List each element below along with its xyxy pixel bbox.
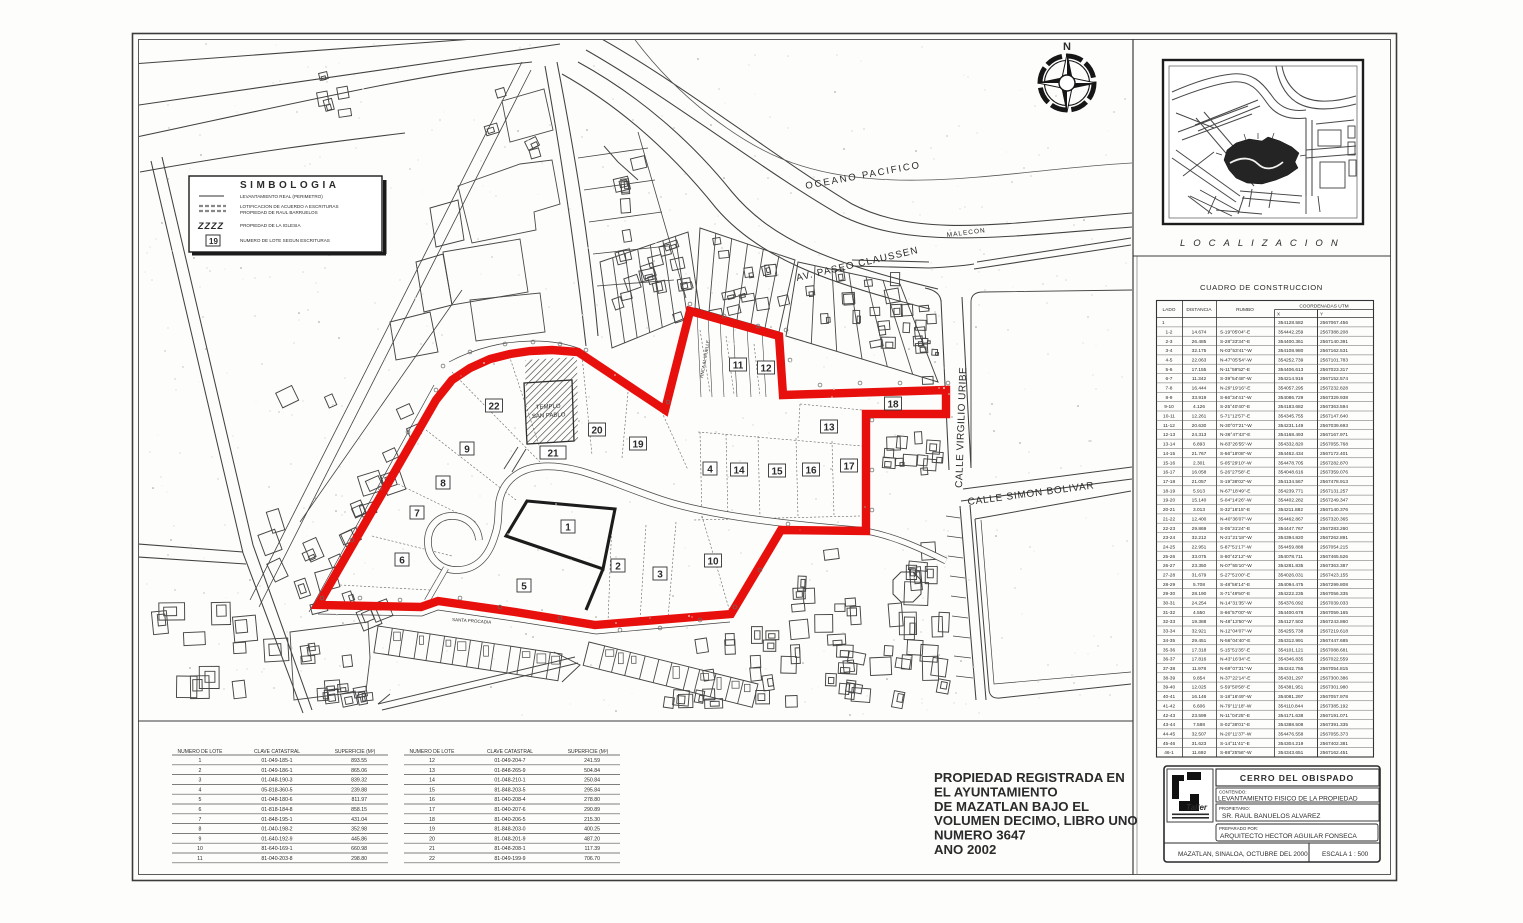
svg-text:354183.682: 354183.682 <box>1278 404 1304 410</box>
svg-text:16.058: 16.058 <box>1192 470 1207 476</box>
svg-text:27-28: 27-28 <box>1163 573 1176 579</box>
svg-text:38-39: 38-39 <box>1163 675 1176 681</box>
svg-text:839.32: 839.32 <box>351 778 367 784</box>
svg-text:11: 11 <box>197 856 202 862</box>
svg-text:2567055.373: 2567055.373 <box>1320 732 1348 738</box>
svg-text:29-30: 29-30 <box>1163 591 1176 597</box>
svg-text:23-24: 23-24 <box>1163 535 1176 541</box>
svg-text:01-640-192-9: 01-640-192-9 <box>261 836 292 842</box>
svg-text:15.140: 15.140 <box>1192 498 1207 504</box>
svg-text:811.97: 811.97 <box>352 797 368 803</box>
svg-text:13: 13 <box>429 768 435 774</box>
svg-text:PROPIEDAD REGISTRADA EN: PROPIEDAD REGISTRADA EN <box>934 770 1125 785</box>
svg-text:445.86: 445.86 <box>351 836 367 842</box>
svg-text:2567283.260: 2567283.260 <box>1320 526 1348 532</box>
svg-text:3-4: 3-4 <box>1166 348 1173 354</box>
svg-text:S-25°40'40"-E: S-25°40'40"-E <box>1220 404 1250 410</box>
svg-text:2567055.768: 2567055.768 <box>1320 442 1348 448</box>
svg-text:2567088.681: 2567088.681 <box>1320 647 1348 653</box>
svg-text:CUADRO DE CONSTRUCCION: CUADRO DE CONSTRUCCION <box>1200 283 1323 292</box>
svg-text:10: 10 <box>197 846 203 852</box>
svg-text:354476.558: 354476.558 <box>1278 732 1304 738</box>
svg-text:2567363.387: 2567363.387 <box>1320 563 1348 569</box>
svg-text:354168.493: 354168.493 <box>1278 432 1304 438</box>
svg-text:354171.638: 354171.638 <box>1278 713 1304 719</box>
svg-text:S-66°34'41"-W: S-66°34'41"-W <box>1220 395 1252 401</box>
svg-text:2567243.860: 2567243.860 <box>1320 619 1348 625</box>
svg-text:2567101.783: 2567101.783 <box>1320 357 1348 363</box>
svg-text:5.708: 5.708 <box>1193 582 1205 588</box>
svg-text:11-12: 11-12 <box>1163 423 1175 429</box>
svg-text:01-049-204-7: 01-049-204-7 <box>494 758 525 764</box>
svg-text:2567172.401: 2567172.401 <box>1320 451 1348 457</box>
svg-text:2567329.938: 2567329.938 <box>1320 395 1348 401</box>
svg-text:CLAVE CATASTRAL: CLAVE CATASTRAL <box>487 749 533 755</box>
svg-text:24.313: 24.313 <box>1192 432 1207 438</box>
svg-text:2567423.155: 2567423.155 <box>1320 573 1348 579</box>
svg-text:PROPIEDAD DE RAUL BARRUELOS: PROPIEDAD DE RAUL BARRUELOS <box>240 210 318 215</box>
svg-text:81-848-203-0: 81-848-203-0 <box>494 827 525 833</box>
svg-text:13-14: 13-14 <box>1163 442 1176 448</box>
svg-text:2567191.071: 2567191.071 <box>1320 713 1348 719</box>
svg-text:16.444: 16.444 <box>1192 386 1207 392</box>
svg-text:EL AYUNTAMIENTO: EL AYUNTAMIENTO <box>934 784 1058 799</box>
svg-text:354462.434: 354462.434 <box>1278 451 1304 457</box>
svg-text:S-71°12'57"-E: S-71°12'57"-E <box>1220 414 1250 420</box>
svg-text:14.674: 14.674 <box>1192 329 1207 335</box>
svg-text:24.254: 24.254 <box>1192 601 1207 607</box>
svg-text:46-1: 46-1 <box>1164 750 1174 756</box>
svg-text:21: 21 <box>429 846 435 852</box>
svg-text:2567059.165: 2567059.165 <box>1320 610 1348 616</box>
svg-text:01-049-186-1: 01-049-186-1 <box>261 768 292 774</box>
svg-text:354459.888: 354459.888 <box>1278 545 1304 551</box>
svg-text:354211.882: 354211.882 <box>1278 507 1303 513</box>
svg-text:S-39°54'48"-W: S-39°54'48"-W <box>1220 376 1252 382</box>
svg-text:354462.867: 354462.867 <box>1278 516 1304 522</box>
svg-text:19.388: 19.388 <box>1192 619 1207 625</box>
svg-text:CONTENIDO:: CONTENIDO: <box>1219 790 1247 795</box>
svg-text:4: 4 <box>199 787 202 793</box>
svg-text:354381.951: 354381.951 <box>1278 685 1304 691</box>
svg-text:N-07°55'10"-W: N-07°55'10"-W <box>1220 563 1252 569</box>
svg-text:N-12°04'07"-W: N-12°04'07"-W <box>1220 629 1252 635</box>
svg-text:14-15: 14-15 <box>1163 451 1176 457</box>
svg-text:05-818-360-5: 05-818-360-5 <box>261 787 292 793</box>
svg-text:COORDENADAS UTM: COORDENADAS UTM <box>1299 304 1348 310</box>
svg-text:354128.582: 354128.582 <box>1278 320 1304 326</box>
svg-text:17.155: 17.155 <box>1192 367 1207 373</box>
svg-text:10: 10 <box>707 557 719 568</box>
svg-text:31.623: 31.623 <box>1192 741 1207 747</box>
svg-text:S-48°56'14"-E: S-48°56'14"-E <box>1220 582 1250 588</box>
svg-text:354255.738: 354255.738 <box>1278 629 1304 635</box>
svg-text:431.04: 431.04 <box>351 817 367 823</box>
svg-text:PREPARADO POR:: PREPARADO POR: <box>1219 826 1258 831</box>
svg-text:354331.297: 354331.297 <box>1278 675 1304 681</box>
svg-text:354376.092: 354376.092 <box>1278 601 1304 607</box>
svg-text:5: 5 <box>521 582 527 593</box>
svg-text:LOCALIZACION: LOCALIZACION <box>1180 238 1346 249</box>
svg-text:8: 8 <box>199 827 202 833</box>
svg-text:2567478.913: 2567478.913 <box>1320 479 1348 485</box>
svg-text:354078.711: 354078.711 <box>1278 554 1303 560</box>
svg-text:4: 4 <box>707 465 713 476</box>
svg-text:14: 14 <box>429 778 435 784</box>
svg-text:28-29: 28-29 <box>1163 582 1176 588</box>
svg-text:352.98: 352.98 <box>351 827 367 833</box>
svg-text:SUPERFICIE (M²): SUPERFICIE (M²) <box>335 749 376 755</box>
svg-text:20-21: 20-21 <box>1163 507 1176 513</box>
svg-text:17.816: 17.816 <box>1192 657 1207 663</box>
svg-text:487.20: 487.20 <box>584 836 600 842</box>
svg-text:1: 1 <box>199 758 202 764</box>
svg-text:N-30°07'21"-W: N-30°07'21"-W <box>1220 423 1252 429</box>
svg-text:N-21°21'18"-W: N-21°21'18"-W <box>1220 535 1252 541</box>
svg-text:2567054.815: 2567054.815 <box>1320 666 1348 672</box>
svg-text:504.84: 504.84 <box>584 768 600 774</box>
svg-text:N-14°31'35"-W: N-14°31'35"-W <box>1220 601 1252 607</box>
svg-text:N-47°05'54"-W: N-47°05'54"-W <box>1220 357 1252 363</box>
svg-text:354214.916: 354214.916 <box>1278 376 1304 382</box>
svg-text:32.921: 32.921 <box>1192 629 1207 635</box>
svg-text:400.25: 400.25 <box>584 827 600 833</box>
svg-text:81-048-208-1: 81-048-208-1 <box>494 846 525 852</box>
svg-text:354332.820: 354332.820 <box>1278 442 1304 448</box>
svg-text:19: 19 <box>632 440 644 451</box>
svg-text:354110.844: 354110.844 <box>1278 703 1303 709</box>
svg-text:33.075: 33.075 <box>1192 554 1207 560</box>
svg-text:278.80: 278.80 <box>584 797 600 803</box>
svg-text:40-41: 40-41 <box>1163 694 1176 700</box>
svg-text:01-048-180-6: 01-048-180-6 <box>261 797 292 803</box>
svg-text:2567262.891: 2567262.891 <box>1320 535 1348 541</box>
svg-text:9-10: 9-10 <box>1164 404 1174 410</box>
svg-text:22.951: 22.951 <box>1192 545 1207 551</box>
svg-text:4.550: 4.550 <box>1193 610 1205 616</box>
svg-text:2567465.526: 2567465.526 <box>1320 554 1348 560</box>
svg-text:SUPERFICIE (M²): SUPERFICIE (M²) <box>568 749 609 755</box>
svg-text:16.146: 16.146 <box>1192 694 1207 700</box>
svg-text:354406.613: 354406.613 <box>1278 367 1304 373</box>
svg-text:S-56°18'08"-W: S-56°18'08"-W <box>1220 451 1252 457</box>
svg-text:16: 16 <box>429 797 435 803</box>
svg-text:2-3: 2-3 <box>1166 339 1173 345</box>
svg-text:1: 1 <box>1162 320 1165 325</box>
svg-text:6-7: 6-7 <box>1166 376 1173 382</box>
svg-text:17: 17 <box>843 462 855 473</box>
svg-text:12: 12 <box>429 758 435 764</box>
svg-text:S-80°42'12"-W: S-80°42'12"-W <box>1220 554 1252 560</box>
svg-text:2567039.033: 2567039.033 <box>1320 601 1348 607</box>
svg-text:2567039.693: 2567039.693 <box>1320 423 1348 429</box>
svg-text:NUMERO 3647: NUMERO 3647 <box>934 828 1026 843</box>
svg-text:354402.282: 354402.282 <box>1278 498 1304 504</box>
svg-text:4-5: 4-5 <box>1166 357 1173 363</box>
svg-text:28.190: 28.190 <box>1192 591 1207 597</box>
svg-text:N-56°04'40"-E: N-56°04'40"-E <box>1220 638 1250 644</box>
svg-text:32.175: 32.175 <box>1192 348 1207 354</box>
svg-text:117.39: 117.39 <box>585 846 601 852</box>
svg-text:12.261: 12.261 <box>1192 414 1207 420</box>
svg-text:DE MAZATLAN BAJO EL: DE MAZATLAN BAJO EL <box>934 799 1089 814</box>
svg-text:SR. RAUL BANUELOS ALVAREZ: SR. RAUL BANUELOS ALVAREZ <box>1222 813 1320 820</box>
svg-text:N-43°16'34"-E: N-43°16'34"-E <box>1220 657 1250 663</box>
svg-text:16: 16 <box>805 466 817 477</box>
svg-text:20.630: 20.630 <box>1192 423 1207 429</box>
svg-text:19: 19 <box>209 237 218 246</box>
svg-text:S-18°16'49"-W: S-18°16'49"-W <box>1220 694 1252 700</box>
svg-text:ZZZZ: ZZZZ <box>197 221 224 231</box>
svg-text:36-37: 36-37 <box>1163 657 1176 663</box>
svg-text:24-25: 24-25 <box>1163 545 1176 551</box>
svg-text:N-79°11'18"-W: N-79°11'18"-W <box>1220 703 1252 709</box>
svg-text:S-66°57'00"-W: S-66°57'00"-W <box>1220 610 1252 616</box>
svg-text:VOLUMEN DECIMO, LIBRO UNO: VOLUMEN DECIMO, LIBRO UNO <box>934 813 1138 828</box>
svg-text:1-2: 1-2 <box>1166 329 1173 335</box>
svg-text:S-19°05'04"-E: S-19°05'04"-E <box>1220 329 1250 335</box>
svg-text:706.70: 706.70 <box>584 856 600 862</box>
svg-text:PROPIEDAD DE LA IGLESIA: PROPIEDAD DE LA IGLESIA <box>240 223 301 228</box>
svg-text:33.919: 33.919 <box>1192 395 1207 401</box>
svg-text:33-34: 33-34 <box>1163 629 1176 635</box>
svg-text:2567140.391: 2567140.391 <box>1320 339 1348 345</box>
svg-text:17.318: 17.318 <box>1192 647 1207 653</box>
svg-text:N-20°11'37"-W: N-20°11'37"-W <box>1220 732 1252 738</box>
svg-text:354304.219: 354304.219 <box>1278 741 1304 747</box>
svg-text:22.063: 22.063 <box>1192 357 1207 363</box>
svg-text:39-40: 39-40 <box>1163 685 1176 691</box>
svg-text:2567388.208: 2567388.208 <box>1320 329 1348 335</box>
svg-text:S-04°14'26"-W: S-04°14'26"-W <box>1220 498 1252 504</box>
svg-text:17-18: 17-18 <box>1163 479 1176 485</box>
svg-text:354127.502: 354127.502 <box>1278 619 1304 625</box>
svg-text:5-6: 5-6 <box>1166 367 1173 373</box>
svg-text:354447.767: 354447.767 <box>1278 526 1304 532</box>
svg-text:7: 7 <box>414 509 420 520</box>
svg-text:21.057: 21.057 <box>1192 479 1207 485</box>
svg-text:2567391.335: 2567391.335 <box>1320 722 1348 728</box>
svg-text:241.59: 241.59 <box>584 758 600 764</box>
svg-text:20: 20 <box>591 426 603 437</box>
svg-text:2567402.381: 2567402.381 <box>1320 741 1348 747</box>
svg-text:ESCALA 1 : 500: ESCALA 1 : 500 <box>1322 851 1369 858</box>
svg-text:29.869: 29.869 <box>1192 526 1207 532</box>
svg-text:ARQUITECTO HECTOR AGUILAR FONS: ARQUITECTO HECTOR AGUILAR FONSECA <box>1220 833 1357 840</box>
svg-text:15-16: 15-16 <box>1163 460 1176 466</box>
svg-text:S-02°38'01"-E: S-02°38'01"-E <box>1220 722 1250 728</box>
svg-text:20: 20 <box>429 836 435 842</box>
svg-text:2567152.574: 2567152.574 <box>1320 376 1348 382</box>
svg-text:23.599: 23.599 <box>1192 713 1207 719</box>
svg-text:21-22: 21-22 <box>1163 516 1176 522</box>
svg-text:354094.475: 354094.475 <box>1278 582 1304 588</box>
svg-text:S-28°33'34"-E: S-28°33'34"-E <box>1220 339 1250 345</box>
svg-text:9: 9 <box>464 445 470 456</box>
svg-text:PROPIETARIO:: PROPIETARIO: <box>1219 806 1250 811</box>
svg-text:2567282.870: 2567282.870 <box>1320 460 1348 466</box>
svg-text:81-640-169-1: 81-640-169-1 <box>261 846 292 852</box>
svg-text:34-35: 34-35 <box>1163 638 1176 644</box>
svg-text:6.606: 6.606 <box>1193 703 1205 709</box>
svg-text:11: 11 <box>733 361 744 372</box>
svg-text:2567022.559: 2567022.559 <box>1320 657 1348 663</box>
svg-text:2567131.257: 2567131.257 <box>1320 488 1348 494</box>
svg-text:LEVANTAMIENTO REAL (PERIMETRO): LEVANTAMIENTO REAL (PERIMETRO) <box>240 194 323 199</box>
svg-text:354026.031: 354026.031 <box>1278 573 1304 579</box>
svg-text:NUMERO DE LOTE SEGUN ESCRITURA: NUMERO DE LOTE SEGUN ESCRITURAS <box>240 238 330 243</box>
svg-text:N-11°04'25"-E: N-11°04'25"-E <box>1220 713 1250 719</box>
svg-text:31.679: 31.679 <box>1192 573 1207 579</box>
svg-text:CLAVE CATASTRAL: CLAVE CATASTRAL <box>254 749 300 755</box>
svg-text:4.126: 4.126 <box>1193 404 1205 410</box>
svg-text:N: N <box>1063 41 1071 53</box>
svg-text:2567385.192: 2567385.192 <box>1320 703 1348 709</box>
svg-text:12: 12 <box>760 364 772 375</box>
svg-text:354057.295: 354057.295 <box>1278 386 1304 392</box>
svg-text:17: 17 <box>429 807 435 813</box>
svg-text:12-13: 12-13 <box>1163 432 1176 438</box>
svg-text:354086.729: 354086.729 <box>1278 395 1304 401</box>
svg-text:354108.980: 354108.980 <box>1278 348 1304 354</box>
svg-text:354048.616: 354048.616 <box>1278 470 1304 476</box>
svg-text:2567301.980: 2567301.980 <box>1320 685 1348 691</box>
svg-text:81-040-208-4: 81-040-208-4 <box>494 797 525 803</box>
svg-text:N-83°26'55"-W: N-83°26'55"-W <box>1220 442 1252 448</box>
svg-text:354312.991: 354312.991 <box>1278 638 1304 644</box>
svg-text:45-46: 45-46 <box>1163 741 1176 747</box>
svg-text:6.893: 6.893 <box>1193 442 1205 448</box>
svg-text:2567320.365: 2567320.365 <box>1320 516 1348 522</box>
svg-text:01-049-185-1: 01-049-185-1 <box>261 758 292 764</box>
svg-text:354345.755: 354345.755 <box>1278 414 1304 420</box>
svg-text:01-048-190-3: 01-048-190-3 <box>261 778 292 784</box>
svg-text:S-87°51'17"-W: S-87°51'17"-W <box>1220 545 1252 551</box>
svg-text:215.30: 215.30 <box>584 817 600 823</box>
svg-text:2567067.456: 2567067.456 <box>1320 320 1348 326</box>
svg-text:19-20: 19-20 <box>1163 498 1176 504</box>
svg-text:81-848-203-5: 81-848-203-5 <box>494 787 525 793</box>
svg-text:2567447.685: 2567447.685 <box>1320 638 1348 644</box>
svg-text:354081.297: 354081.297 <box>1278 694 1304 700</box>
svg-text:13: 13 <box>823 423 835 434</box>
svg-text:21.767: 21.767 <box>1192 451 1207 457</box>
svg-text:298.80: 298.80 <box>351 856 367 862</box>
svg-text:2567167.971: 2567167.971 <box>1320 432 1348 438</box>
svg-text:S-26°27'58"-E: S-26°27'58"-E <box>1220 470 1250 476</box>
svg-text:354281.835: 354281.835 <box>1278 563 1304 569</box>
svg-text:X: X <box>1277 312 1280 317</box>
svg-text:LADO: LADO <box>1162 307 1175 313</box>
svg-text:N-69°07'31"-W: N-69°07'31"-W <box>1220 666 1252 672</box>
svg-text:1: 1 <box>565 523 571 534</box>
svg-text:S-05°31'24"-E: S-05°31'24"-E <box>1220 526 1250 532</box>
svg-text:354134.567: 354134.567 <box>1278 479 1304 485</box>
svg-text:295.84: 295.84 <box>584 787 600 793</box>
svg-text:12.400: 12.400 <box>1192 516 1207 522</box>
svg-text:2567219.618: 2567219.618 <box>1320 629 1348 635</box>
svg-text:8: 8 <box>440 479 446 490</box>
svg-text:81-049-199-9: 81-049-199-9 <box>494 856 525 862</box>
svg-text:41-42: 41-42 <box>1163 703 1176 709</box>
svg-text:5.913: 5.913 <box>1193 488 1205 494</box>
svg-text:2567300.386: 2567300.386 <box>1320 675 1348 681</box>
svg-text:14: 14 <box>733 466 745 477</box>
svg-text:6: 6 <box>399 556 405 567</box>
svg-text:15: 15 <box>771 467 783 478</box>
svg-text:32-33: 32-33 <box>1163 619 1176 625</box>
svg-text:S-15°51'35"-E: S-15°51'35"-E <box>1220 647 1250 653</box>
svg-text:2567162.531: 2567162.531 <box>1320 348 1348 354</box>
svg-text:Y: Y <box>1320 312 1323 317</box>
svg-text:2567162.451: 2567162.451 <box>1320 750 1348 756</box>
svg-text:7: 7 <box>199 817 202 823</box>
svg-text:44-45: 44-45 <box>1163 732 1176 738</box>
svg-text:3: 3 <box>657 570 663 581</box>
svg-text:N-48°13'50"-W: N-48°13'50"-W <box>1220 619 1252 625</box>
svg-text:9.854: 9.854 <box>1193 675 1205 681</box>
svg-text:2567299.808: 2567299.808 <box>1320 582 1348 588</box>
svg-text:354343.651: 354343.651 <box>1278 750 1304 756</box>
svg-text:NUMERO DE LOTE: NUMERO DE LOTE <box>409 749 455 755</box>
svg-text:2567232.828: 2567232.828 <box>1320 386 1348 392</box>
svg-text:S-05°29'10"-W: S-05°29'10"-W <box>1220 460 1252 466</box>
svg-text:S-71°49'50"-E: S-71°49'50"-E <box>1220 591 1250 597</box>
svg-text:2.301: 2.301 <box>1193 460 1205 466</box>
svg-text:250.84: 250.84 <box>584 778 600 784</box>
svg-text:31-32: 31-32 <box>1163 610 1176 616</box>
svg-text:S-32°16'15"-E: S-32°16'15"-E <box>1220 507 1250 513</box>
svg-text:81-040-207-6: 81-040-207-6 <box>494 807 525 813</box>
svg-text:S-59°50'58"-E: S-59°50'58"-E <box>1220 685 1250 691</box>
svg-text:37-38: 37-38 <box>1163 666 1176 672</box>
svg-text:32.212: 32.212 <box>1192 535 1207 541</box>
svg-text:01-048-210-1: 01-048-210-1 <box>494 778 525 784</box>
svg-text:MAZATLAN, SINALOA, OCTUBRE DEL: MAZATLAN, SINALOA, OCTUBRE DEL 2000 <box>1178 851 1308 858</box>
svg-text:23.350: 23.350 <box>1192 563 1207 569</box>
svg-text:81-040-203-8: 81-040-203-8 <box>261 856 292 862</box>
svg-text:Taller: Taller <box>1186 803 1208 812</box>
svg-text:LOTIFICACION DE ACUERDO A ESCR: LOTIFICACION DE ACUERDO A ESCRITURAS <box>240 204 339 209</box>
svg-text:18-19: 18-19 <box>1163 488 1176 494</box>
svg-text:S-88°25'56"-W: S-88°25'56"-W <box>1220 750 1252 756</box>
svg-text:5: 5 <box>199 797 202 803</box>
svg-text:2567147.640: 2567147.640 <box>1320 414 1348 420</box>
svg-text:21: 21 <box>547 449 559 460</box>
svg-text:239.88: 239.88 <box>351 787 367 793</box>
svg-text:354242.755: 354242.755 <box>1278 666 1304 672</box>
svg-text:354222.235: 354222.235 <box>1278 591 1304 597</box>
svg-text:01-818-184-8: 01-818-184-8 <box>261 807 292 813</box>
svg-text:10-11: 10-11 <box>1163 414 1175 420</box>
svg-text:7.588: 7.588 <box>1193 722 1205 728</box>
svg-text:11.978: 11.978 <box>1192 666 1207 672</box>
svg-text:354400.361: 354400.361 <box>1278 339 1304 345</box>
svg-text:8-9: 8-9 <box>1166 395 1173 401</box>
svg-text:12.025: 12.025 <box>1192 685 1207 691</box>
svg-text:354442.259: 354442.259 <box>1278 329 1304 335</box>
svg-text:43-44: 43-44 <box>1163 722 1176 728</box>
svg-text:2567054.215: 2567054.215 <box>1320 545 1348 551</box>
svg-text:858.15: 858.15 <box>351 807 367 813</box>
svg-text:29.451: 29.451 <box>1192 638 1207 644</box>
svg-text:ANO 2002: ANO 2002 <box>934 842 996 857</box>
svg-text:LEVANTAMIENTO FISICO DE LA PRO: LEVANTAMIENTO FISICO DE LA PROPIEDAD <box>1218 796 1358 803</box>
svg-text:81-048-201-9: 81-048-201-9 <box>494 836 525 842</box>
svg-text:32.507: 32.507 <box>1192 732 1207 738</box>
svg-text:9: 9 <box>199 836 202 842</box>
svg-text:22: 22 <box>488 402 500 413</box>
